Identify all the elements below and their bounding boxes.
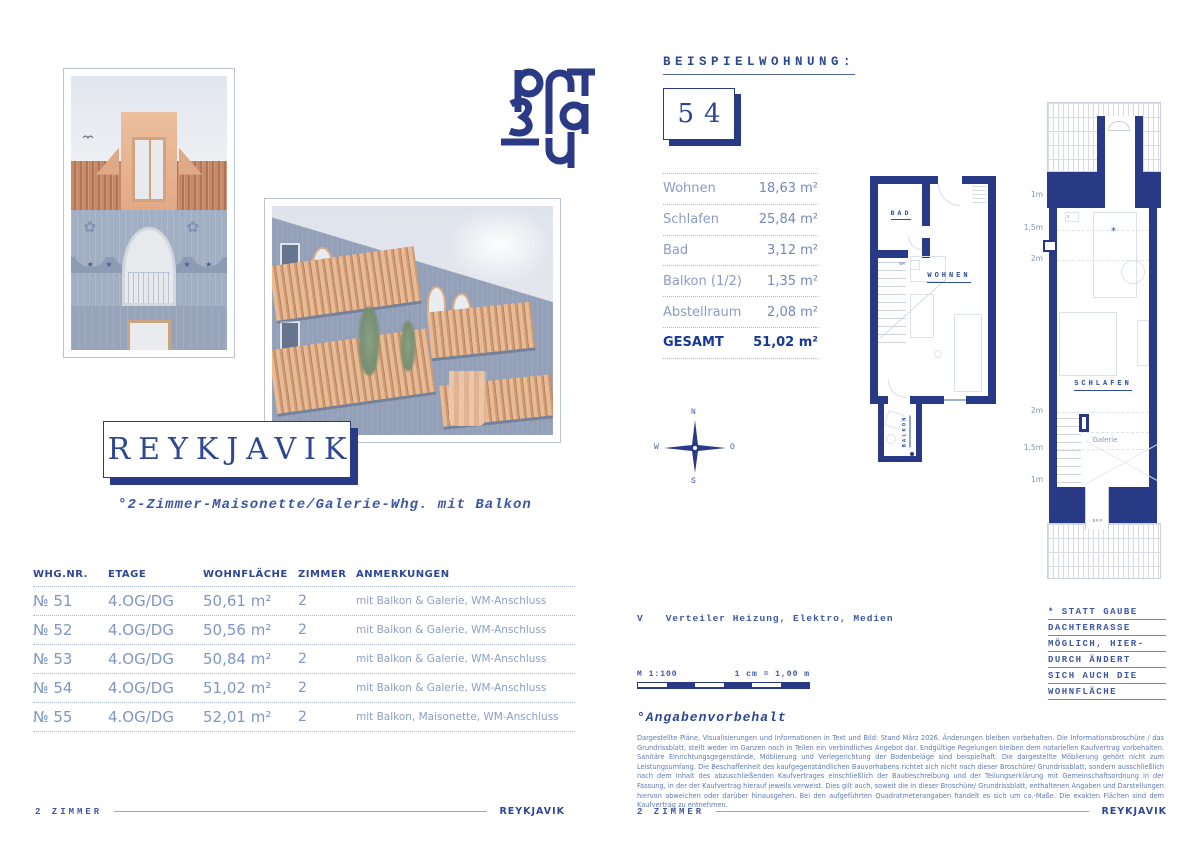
table-row: № 53 4.OG/DG 50,84 m² 2 mit Balkon & Gal… [33,645,575,674]
col-header-zimmer: ZIMMER [298,569,356,580]
brand-logo [497,52,597,172]
cell-flaeche: 50,56 m² [203,621,298,639]
cell-zimmer: 2 [298,593,356,609]
photo-plant [359,307,379,376]
area-value: 25,84 m² [759,212,818,227]
compass-west: W [654,443,659,452]
cell-zimmer: 2 [298,651,356,667]
floorplan-lower-level: BAD WM WOHNEN BALKON [870,166,996,466]
door-swing-arc [938,184,960,206]
col-header-wohnflaeche: WOHNFLÄCHE [203,569,298,580]
label-leader-dot [910,452,914,456]
project-subtitle: °2-Zimmer-Maisonette/Galerie-Whg. mit Ba… [75,497,575,513]
plan-dresser [1137,320,1149,366]
note-line: MÖGLICH, HIER- [1048,639,1166,652]
col-header-whgnr: WHG.NR. [33,569,108,580]
cell-flaeche: 50,61 m² [203,592,298,610]
plan-dormer [1097,116,1143,208]
cell-etage: 4.OG/DG [108,650,203,668]
note-line: DACHTERRASSE [1048,623,1166,636]
plan-stairs [1057,418,1081,484]
footer-section-label: 2 ZIMMER [35,807,102,817]
plan-wall-window [1043,240,1057,252]
dim-label: 1,5m [1017,223,1043,232]
footer-rule [716,811,1089,812]
cell-etage: 4.OG/DG [108,621,203,639]
note-line: DURCH ÄNDERT [1048,655,1166,668]
table-header-row: WHG.NR. ETAGE WOHNFLÄCHE ZIMMER ANMERKUN… [33,563,575,587]
area-row: Wohnen 18,63 m² [663,173,818,204]
plan-s-marker: s [1067,214,1070,220]
footer-project-label: REYKJAVIK [1101,806,1167,817]
cell-nr: № 54 [33,679,108,697]
area-list: Wohnen 18,63 m² Schlafen 25,84 m² Bad 3,… [663,173,818,359]
scale-ratio: M 1:100 [637,670,678,679]
room-label-galerie: Galerie [1081,436,1129,444]
area-total-label: GESAMT [663,335,724,350]
cell-flaeche: 50,84 m² [203,650,298,668]
footer-section-label: 2 ZIMMER [637,807,704,817]
room-label-bad: BAD [880,210,922,217]
compass-rose: N W O S [650,408,740,488]
cell-anmerkungen: mit Balkon & Galerie, WM-Anschluss [356,624,575,636]
table-row: № 52 4.OG/DG 50,56 m² 2 mit Balkon & Gal… [33,616,575,645]
project-title: REYKJAVIK [100,432,355,467]
star-ornament: ★ [205,260,212,269]
compass-north: N [691,408,696,417]
footer-project-label: REYKJAVIK [499,806,565,817]
photo-lower-window [127,320,171,350]
plan-legend: VVerteiler Heizung, Elektro, Medien [637,613,894,624]
area-value: 3,12 m² [767,243,818,258]
cell-anmerkungen: mit Balkon & Galerie, WM-Anschluss [356,682,575,694]
photo-curtain [449,371,486,426]
flower-ornament: ✿ [83,218,96,236]
plan-wall [922,238,930,258]
plan-wall [1143,172,1161,208]
star-ornament: ★ [87,260,94,269]
note-line: SICH AUCH DIE [1048,671,1166,684]
area-total-row: GESAMT 51,02 m² [663,327,818,358]
star-ornament: ★ [183,260,190,269]
dim-label: 1m [1017,475,1043,484]
page-footer: 2 ZIMMER REYKJAVIK [35,806,565,817]
plan-bed [1059,312,1117,376]
plan-sofa [954,314,982,392]
cell-zimmer: 2 [298,709,356,725]
facade-photo-frame: ★ ★ ★ ★ ✿ ✿ [63,68,235,358]
plan-wall [962,176,996,184]
dim-label: 1,5m [1017,443,1043,452]
brochure-spread: ★ ★ ★ ★ ✿ ✿ [0,0,1200,849]
photo-balcony-rail [128,272,169,303]
plan-dormer-window [1108,121,1130,131]
void-cross-line [1085,440,1159,482]
floorplan-upper-level: DFF SCHLAFEN Galerie * s [1045,100,1163,582]
plan-dff-channel: DFF [1085,487,1109,529]
area-label: Bad [663,243,688,258]
flower-ornament: ✿ [186,218,199,236]
col-header-anmerkungen: ANMERKUNGEN [356,569,575,580]
cell-flaeche: 52,01 m² [203,708,298,726]
cell-nr: № 53 [33,650,108,668]
example-apartment-label: BEISPIELWOHNUNG: [663,55,855,75]
area-label: Schlafen [663,212,719,227]
bird-icon [83,134,93,140]
cell-etage: 4.OG/DG [108,679,203,697]
door-swing-arc [888,380,906,398]
legend-symbol: V [637,613,644,624]
room-label-schlafen: SCHLAFEN [1057,380,1149,388]
compass-south: S [691,477,696,486]
dim-label: 2m [1017,254,1043,263]
disclaimer-text: Dargestellte Pläne, Visualisierungen und… [637,734,1164,811]
compass-star-icon [650,408,740,488]
photo-plant [401,321,415,371]
plan-wall [1047,172,1097,208]
disclaimer-title: °Angabenvorbehalt [637,710,787,725]
scale-equivalence: 1 cm = 1,00 m [735,670,810,679]
footer-rule [114,811,487,812]
note-line: WOHNFLÄCHE [1048,687,1166,700]
plan-wall [988,176,996,404]
area-label: Abstellraum [663,305,741,320]
plan-wall [870,176,878,404]
plan-wall [1109,487,1157,523]
plan-stairs [878,262,906,346]
door-swing-arc [908,236,922,250]
plan-wall [878,250,908,258]
photo-dormer-window [132,137,166,202]
area-row: Bad 3,12 m² [663,235,818,266]
plan-wall [922,176,930,226]
apartment-table: WHG.NR. ETAGE WOHNFLÄCHE ZIMMER ANMERKUN… [33,563,575,732]
balcony-photo [272,206,553,435]
plan-gallery-rail [1079,414,1089,432]
room-label-wohnen: WOHNEN [916,272,982,280]
room-label-balkon: BALKON [901,410,908,454]
facade-photo: ★ ★ ★ ★ ✿ ✿ [71,76,227,350]
plan-hatch-detail [972,186,986,206]
room-label-wm: WM [894,262,910,267]
photo-cloud [446,206,553,284]
plan-wall [966,396,996,404]
cell-etage: 4.OG/DG [108,592,203,610]
col-header-etage: ETAGE [108,569,203,580]
dim-label: 2m [1017,406,1043,415]
example-apartment-number: 54 [667,99,730,129]
plan-table [910,294,934,338]
area-value: 18,63 m² [759,181,818,196]
photo-dormer [121,112,177,211]
gallery-edge-line [1081,432,1149,433]
terrace-note: * STATT GAUBE DACHTERRASSE MÖGLICH, HIER… [1048,607,1166,703]
area-value: 1,35 m² [767,274,818,289]
area-label: Balkon (1/2) [663,274,742,289]
area-label: Wohnen [663,181,716,196]
plan-window [944,399,966,401]
compass-east: O [730,443,735,452]
plan-closet [1093,212,1137,298]
footnote-star-marker: * [1111,226,1116,237]
cell-zimmer: 2 [298,680,356,696]
project-title-box: REYKJAVIK [103,421,351,478]
cell-zimmer: 2 [298,622,356,638]
area-row: Abstellraum 2,08 m² [663,296,818,327]
plan-wall [1049,487,1085,523]
photo-arch-window [122,227,175,306]
cell-anmerkungen: mit Balkon & Galerie, WM-Anschluss [356,653,575,665]
plan-wall [916,404,922,462]
plan-lamp [934,350,942,358]
area-total-value: 51,02 m² [753,335,818,350]
plan-wall [878,404,884,462]
legend-text: Verteiler Heizung, Elektro, Medien [666,613,894,624]
cell-nr: № 52 [33,621,108,639]
cell-anmerkungen: mit Balkon, Maisonette, WM-Anschluss [356,711,575,723]
page-footer: 2 ZIMMER REYKJAVIK [637,806,1167,817]
area-value: 2,08 m² [767,305,818,320]
star-ornament: ★ [105,260,112,269]
dim-label: 1m [1017,190,1043,199]
cell-flaeche: 51,02 m² [203,679,298,697]
roof-height-line [1057,412,1149,413]
note-line: * STATT GAUBE [1048,607,1166,620]
area-row: Schlafen 25,84 m² [663,204,818,235]
plan-balcony-table [886,434,896,444]
scale-bar [637,682,810,689]
cell-nr: № 51 [33,592,108,610]
balcony-photo-frame [264,198,561,443]
plan-wall [910,396,944,404]
table-row: № 51 4.OG/DG 50,61 m² 2 mit Balkon & Gal… [33,587,575,616]
plan-shower [1121,260,1145,284]
room-label-dff: DFF [1088,519,1108,524]
cell-nr: № 55 [33,708,108,726]
example-apartment-number-box: 54 [663,88,735,140]
scale-bar-group: M 1:100 1 cm = 1,00 m [637,670,810,689]
area-row: Balkon (1/2) 1,35 m² [663,265,818,296]
table-row: № 54 4.OG/DG 51,02 m² 2 mit Balkon & Gal… [33,674,575,703]
cell-etage: 4.OG/DG [108,708,203,726]
plan-roof-hatch [1047,523,1161,579]
plan-washing-machine [910,260,920,270]
cell-anmerkungen: mit Balkon & Galerie, WM-Anschluss [356,595,575,607]
plan-wall [870,396,888,404]
table-row: № 55 4.OG/DG 52,01 m² 2 mit Balkon, Mais… [33,703,575,732]
